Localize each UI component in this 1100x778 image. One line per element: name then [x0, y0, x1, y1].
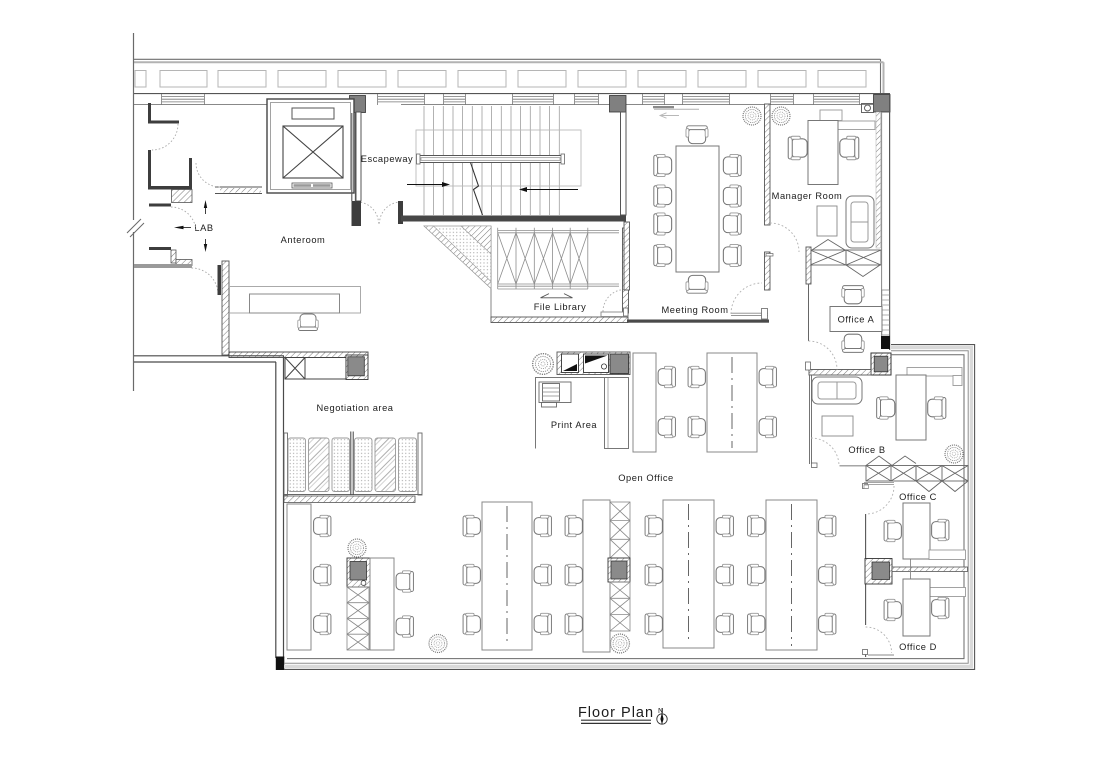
svg-text:Floor Plan: Floor Plan: [578, 705, 654, 721]
svg-text:Print Area: Print Area: [551, 420, 598, 430]
svg-text:File Library: File Library: [534, 302, 587, 312]
svg-text:Negotiation area: Negotiation area: [316, 403, 393, 413]
svg-text:Anteroom: Anteroom: [281, 235, 326, 245]
svg-text:Manager Room: Manager Room: [772, 191, 843, 201]
svg-text:LAB: LAB: [194, 223, 213, 233]
svg-text:Open Office: Open Office: [618, 473, 674, 483]
svg-text:Office A: Office A: [838, 315, 875, 325]
svg-text:Office C: Office C: [899, 492, 937, 502]
svg-text:Office B: Office B: [848, 445, 885, 455]
svg-text:Meeting Room: Meeting Room: [661, 305, 728, 315]
svg-text:Escapeway: Escapeway: [361, 154, 414, 164]
svg-text:Office D: Office D: [899, 642, 937, 652]
